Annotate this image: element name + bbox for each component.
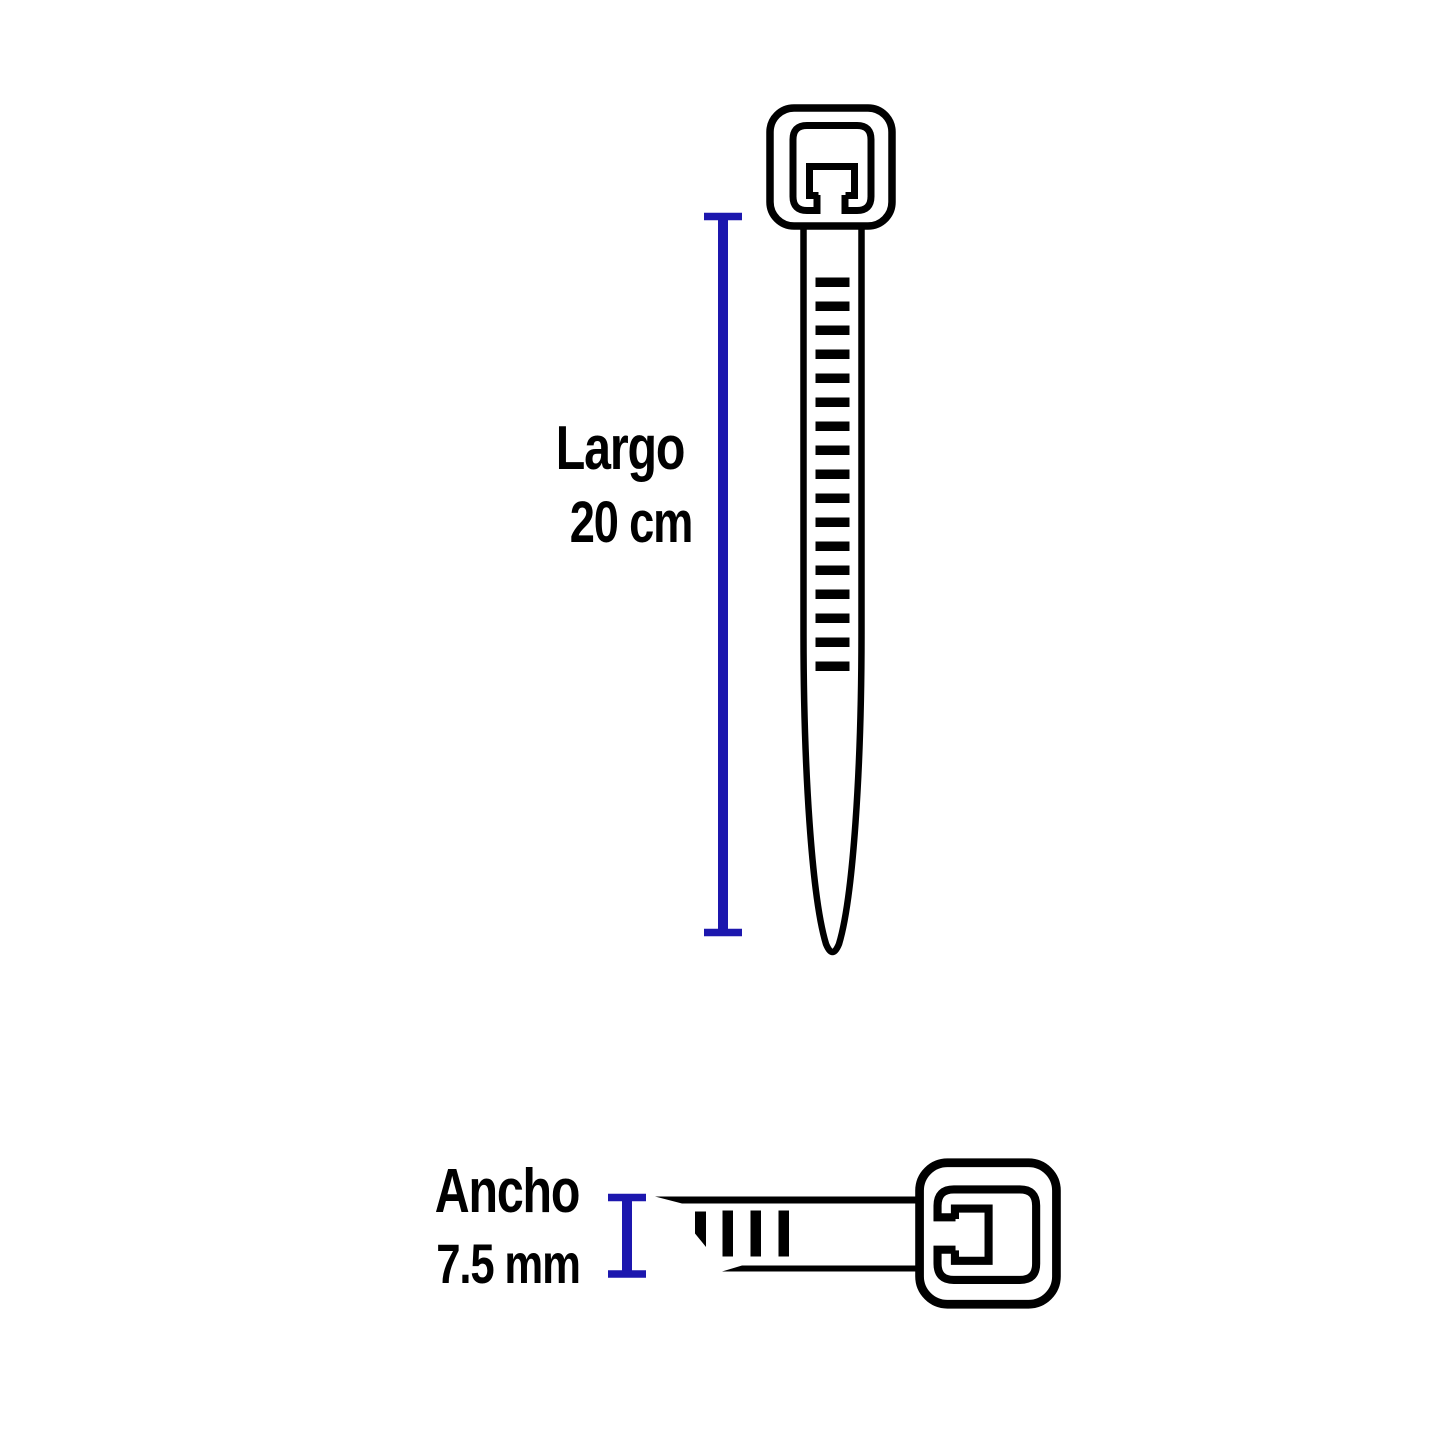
strap-top-edge	[655, 1197, 919, 1204]
cable-tie-teeth	[816, 278, 850, 672]
length-measure-bar	[704, 217, 742, 933]
cable-tie-head-icon	[920, 1163, 1057, 1305]
width-value: 7.5 mm	[430, 1236, 586, 1292]
cable-tie-line-art	[0, 0, 1445, 1445]
cable-tie-head-icon	[770, 108, 892, 226]
width-measure-bar	[608, 1198, 646, 1275]
cable-tie-vertical	[770, 108, 892, 952]
strap-bottom-edge	[722, 1266, 919, 1272]
width-label: Ancho	[429, 1161, 585, 1223]
dimension-diagram: Largo 20 cm Ancho 7.5 mm	[0, 0, 1445, 1445]
length-value: 20 cm	[553, 494, 709, 552]
cable-tie-teeth	[695, 1211, 789, 1257]
length-label: Largo	[542, 418, 698, 480]
cable-tie-horizontal	[655, 1163, 1056, 1305]
